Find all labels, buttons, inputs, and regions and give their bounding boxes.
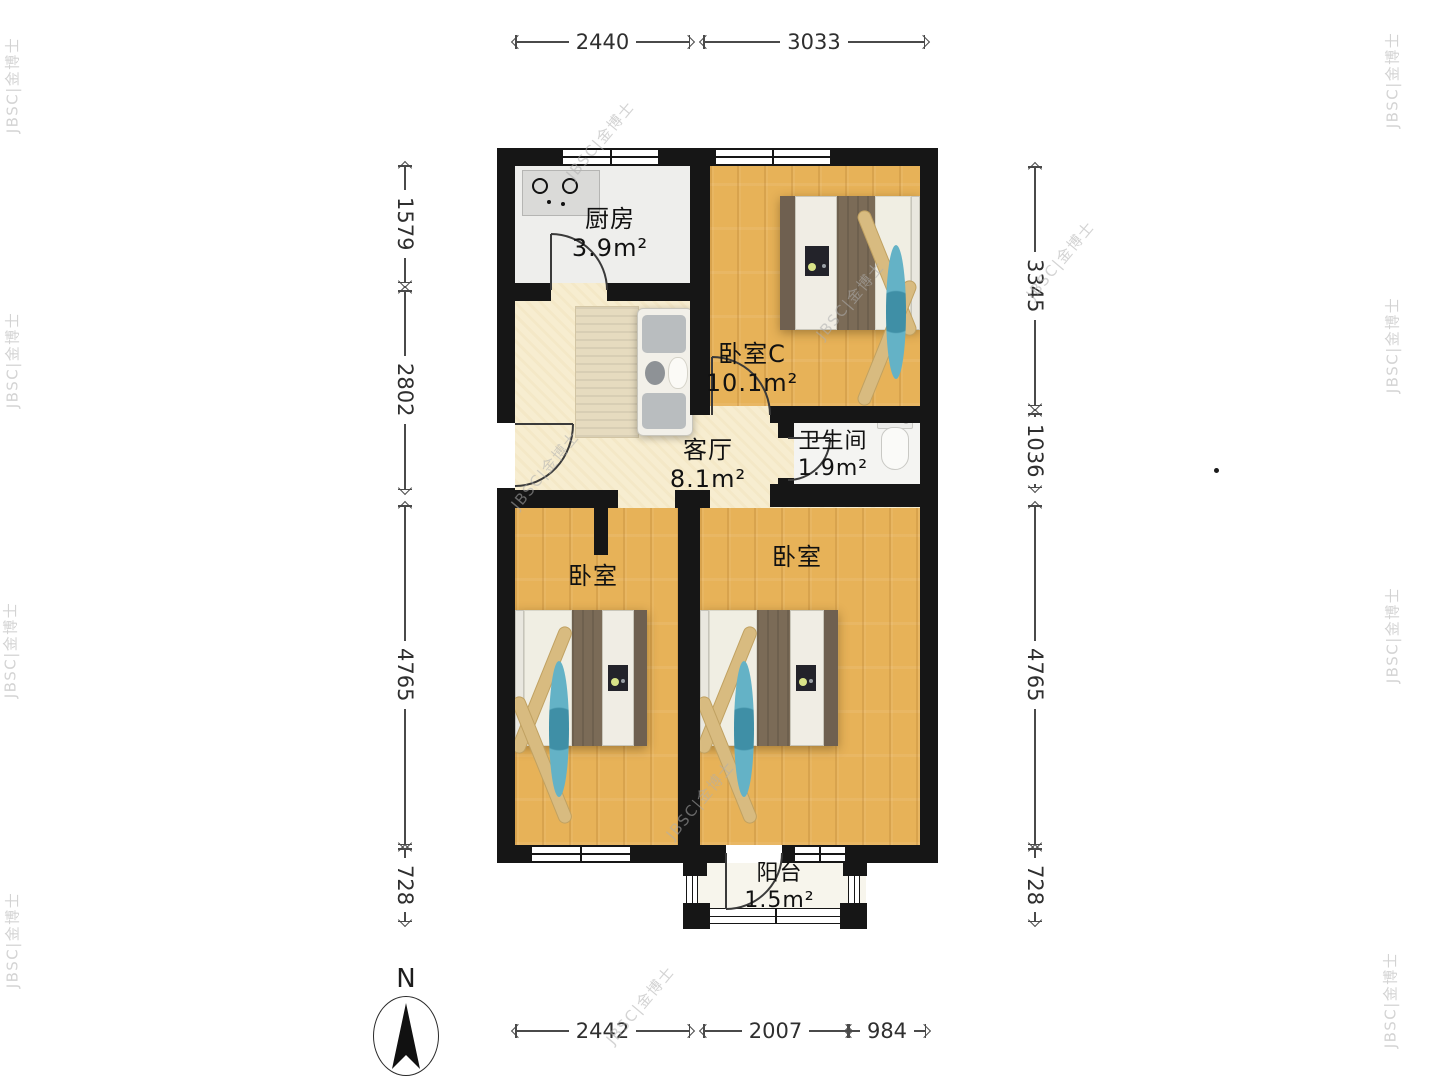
balcony-label: 阳台 1.5m² (722, 860, 837, 914)
wall (678, 508, 700, 863)
balcony-post (683, 863, 707, 876)
wall (497, 148, 515, 423)
watermark: JBSC|金博士 (2, 37, 23, 134)
room-area: 1.9m² (787, 455, 879, 482)
dimension: 1579 (392, 165, 418, 283)
room-name: 阳台 (722, 860, 837, 887)
watermark: JBSC|金博士 (1382, 297, 1403, 394)
bathroom-label: 卫生间 1.9m² (787, 428, 879, 482)
wall (920, 148, 938, 863)
dimension: 3345 (1022, 166, 1048, 406)
wall (845, 845, 938, 863)
tv-icon (796, 665, 816, 691)
room-name: 卧室 (556, 562, 630, 591)
dimension: 4765 (1022, 505, 1048, 845)
dimension: 2007 (703, 1018, 848, 1044)
watermark: JBSC|金博士 (2, 312, 23, 409)
wall (594, 508, 608, 555)
dimension: 2802 (392, 290, 418, 490)
wall (770, 406, 920, 423)
round-cushion (549, 661, 569, 797)
room-name: 卫生间 (787, 428, 879, 455)
rug (575, 306, 639, 438)
north-compass: N (368, 964, 444, 1080)
speck (1214, 468, 1219, 473)
bedroom-right-label: 卧室 (760, 543, 834, 572)
room-area: 3.9m² (555, 234, 665, 263)
bedroom-left-bed (515, 610, 647, 746)
kitchen-window (563, 148, 658, 166)
bedroom-left-window (532, 845, 630, 863)
north-label: N (368, 964, 444, 994)
round-cushion (734, 661, 754, 797)
room-name: 卧室C (692, 340, 812, 369)
dimension: 1036 (1022, 413, 1048, 488)
dimension: 728 (392, 848, 418, 922)
tv-icon (805, 246, 829, 276)
dimension: 3033 (703, 29, 925, 55)
watermark: JBSC|金博士 (2, 892, 23, 989)
bedroom-c-label: 卧室C 10.1m² (692, 340, 812, 398)
dimension: 984 (848, 1018, 926, 1044)
balcony-window-left (686, 876, 698, 903)
wall (497, 845, 532, 863)
kitchen-label: 厨房 3.9m² (555, 205, 665, 263)
room-name: 厨房 (555, 205, 665, 234)
dimension: 2442 (515, 1018, 690, 1044)
compass-needle-icon (373, 996, 439, 1076)
burner-icon (532, 178, 548, 194)
room-area: 8.1m² (648, 465, 768, 494)
watermark: JBSC|金博士 (1380, 952, 1401, 1049)
sofa (637, 308, 693, 436)
dimension: 728 (1022, 848, 1048, 922)
watermark: JBSC|金博士 (1382, 32, 1403, 129)
balcony-post (843, 863, 867, 876)
room-area: 10.1m² (692, 369, 812, 398)
watermark: JBSC|金博士 (0, 602, 21, 699)
bedroom-left-label: 卧室 (556, 562, 630, 591)
balcony-window-right (848, 876, 860, 903)
bedroom-c-window (716, 148, 830, 166)
floor-plan: 厨房 3.9m² 卧室C 10.1m² 卫生间 1.9m² 客厅 8.1m² 卧… (0, 0, 1440, 1080)
wall (658, 148, 716, 166)
balcony-post (683, 903, 710, 929)
tv-icon (608, 665, 628, 691)
room-area: 1.5m² (722, 887, 837, 914)
watermark: JBSC|金博士 (1382, 587, 1403, 684)
living-room-label: 客厅 8.1m² (648, 436, 768, 494)
room-name: 客厅 (648, 436, 768, 465)
dimension: 4765 (392, 505, 418, 845)
balcony-post (840, 903, 867, 929)
wall (770, 484, 920, 507)
burner-icon (562, 178, 578, 194)
bedroom-c-bed (780, 196, 920, 330)
wall (515, 490, 618, 508)
bedroom-right-bed (700, 610, 838, 746)
dimension: 2440 (515, 29, 690, 55)
room-name: 卧室 (760, 543, 834, 572)
wall (515, 283, 551, 301)
round-cushion (886, 245, 906, 379)
wall (497, 488, 515, 863)
